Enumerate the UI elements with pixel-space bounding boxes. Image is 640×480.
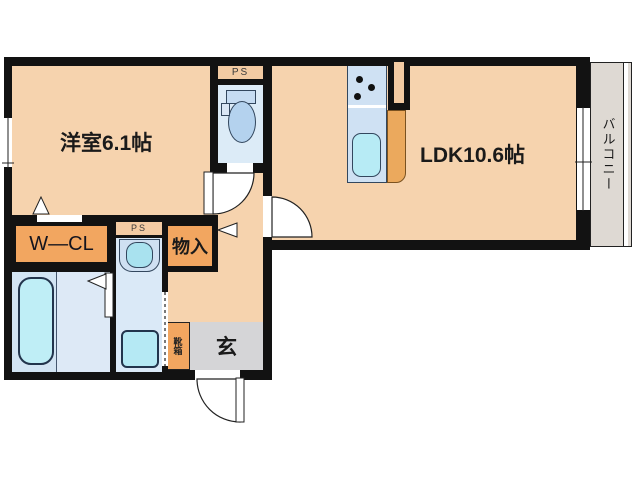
kitchen-sink — [352, 133, 381, 177]
entrance-label: 玄 — [216, 331, 237, 361]
entrance-door-opening — [195, 370, 240, 380]
stove-burner-2 — [368, 84, 375, 91]
wall-toilet-stub-left — [210, 163, 227, 173]
wall-toilet-left — [210, 57, 218, 173]
pipe-space-toilet: PS — [218, 66, 263, 79]
wall-toilet-stub-right — [253, 163, 272, 173]
wall-washroom-right-upper — [162, 218, 168, 292]
ldk-label: LDK10.6帖 — [420, 139, 525, 169]
toilet-paper-holder — [221, 103, 230, 116]
kitchen-column-niche — [394, 62, 404, 103]
kitchen-divider — [348, 105, 386, 108]
walk-in-closet-label: W—CL — [29, 233, 93, 256]
balcony: バルコニー — [590, 62, 632, 247]
toilet-door-opening — [227, 163, 253, 173]
wall-washroom-left — [110, 218, 116, 372]
washbasin-bowl — [126, 242, 153, 268]
washing-machine — [121, 330, 159, 368]
toilet-bowl — [228, 101, 256, 143]
entrance-door-leaf — [236, 378, 244, 422]
pipe-space-washroom-label: PS — [131, 223, 147, 233]
ldk-door-opening — [263, 196, 272, 237]
stove-burner-3 — [354, 93, 361, 100]
balcony-label: バルコニー — [593, 63, 623, 246]
kitchen-counter — [387, 110, 406, 183]
balcony-window — [577, 107, 590, 211]
entrance: 玄 — [190, 322, 263, 370]
shoe-box-label: 靴箱 — [167, 323, 189, 369]
western-room-label: 洋室6.1帖 — [60, 127, 152, 157]
stove-burner-1 — [356, 76, 363, 83]
closet-door-opening — [37, 215, 82, 222]
storage: 物入 — [168, 226, 212, 266]
pipe-space-toilet-label: PS — [232, 67, 249, 78]
wall-washroom-right-lowerstub — [162, 366, 168, 372]
entrance-door-arc — [197, 379, 240, 422]
walk-in-closet: W—CL — [16, 226, 107, 262]
bathtub — [18, 277, 54, 365]
western-room-window — [4, 117, 12, 168]
floorplan: バルコニー PS W—CL 物入 PS 靴箱 玄 — [0, 0, 640, 480]
storage-label: 物入 — [172, 233, 208, 259]
washroom-door-opening — [162, 292, 168, 366]
balcony-railing — [623, 63, 628, 246]
pipe-space-washroom: PS — [116, 221, 162, 235]
shoe-box: 靴箱 — [166, 322, 190, 370]
